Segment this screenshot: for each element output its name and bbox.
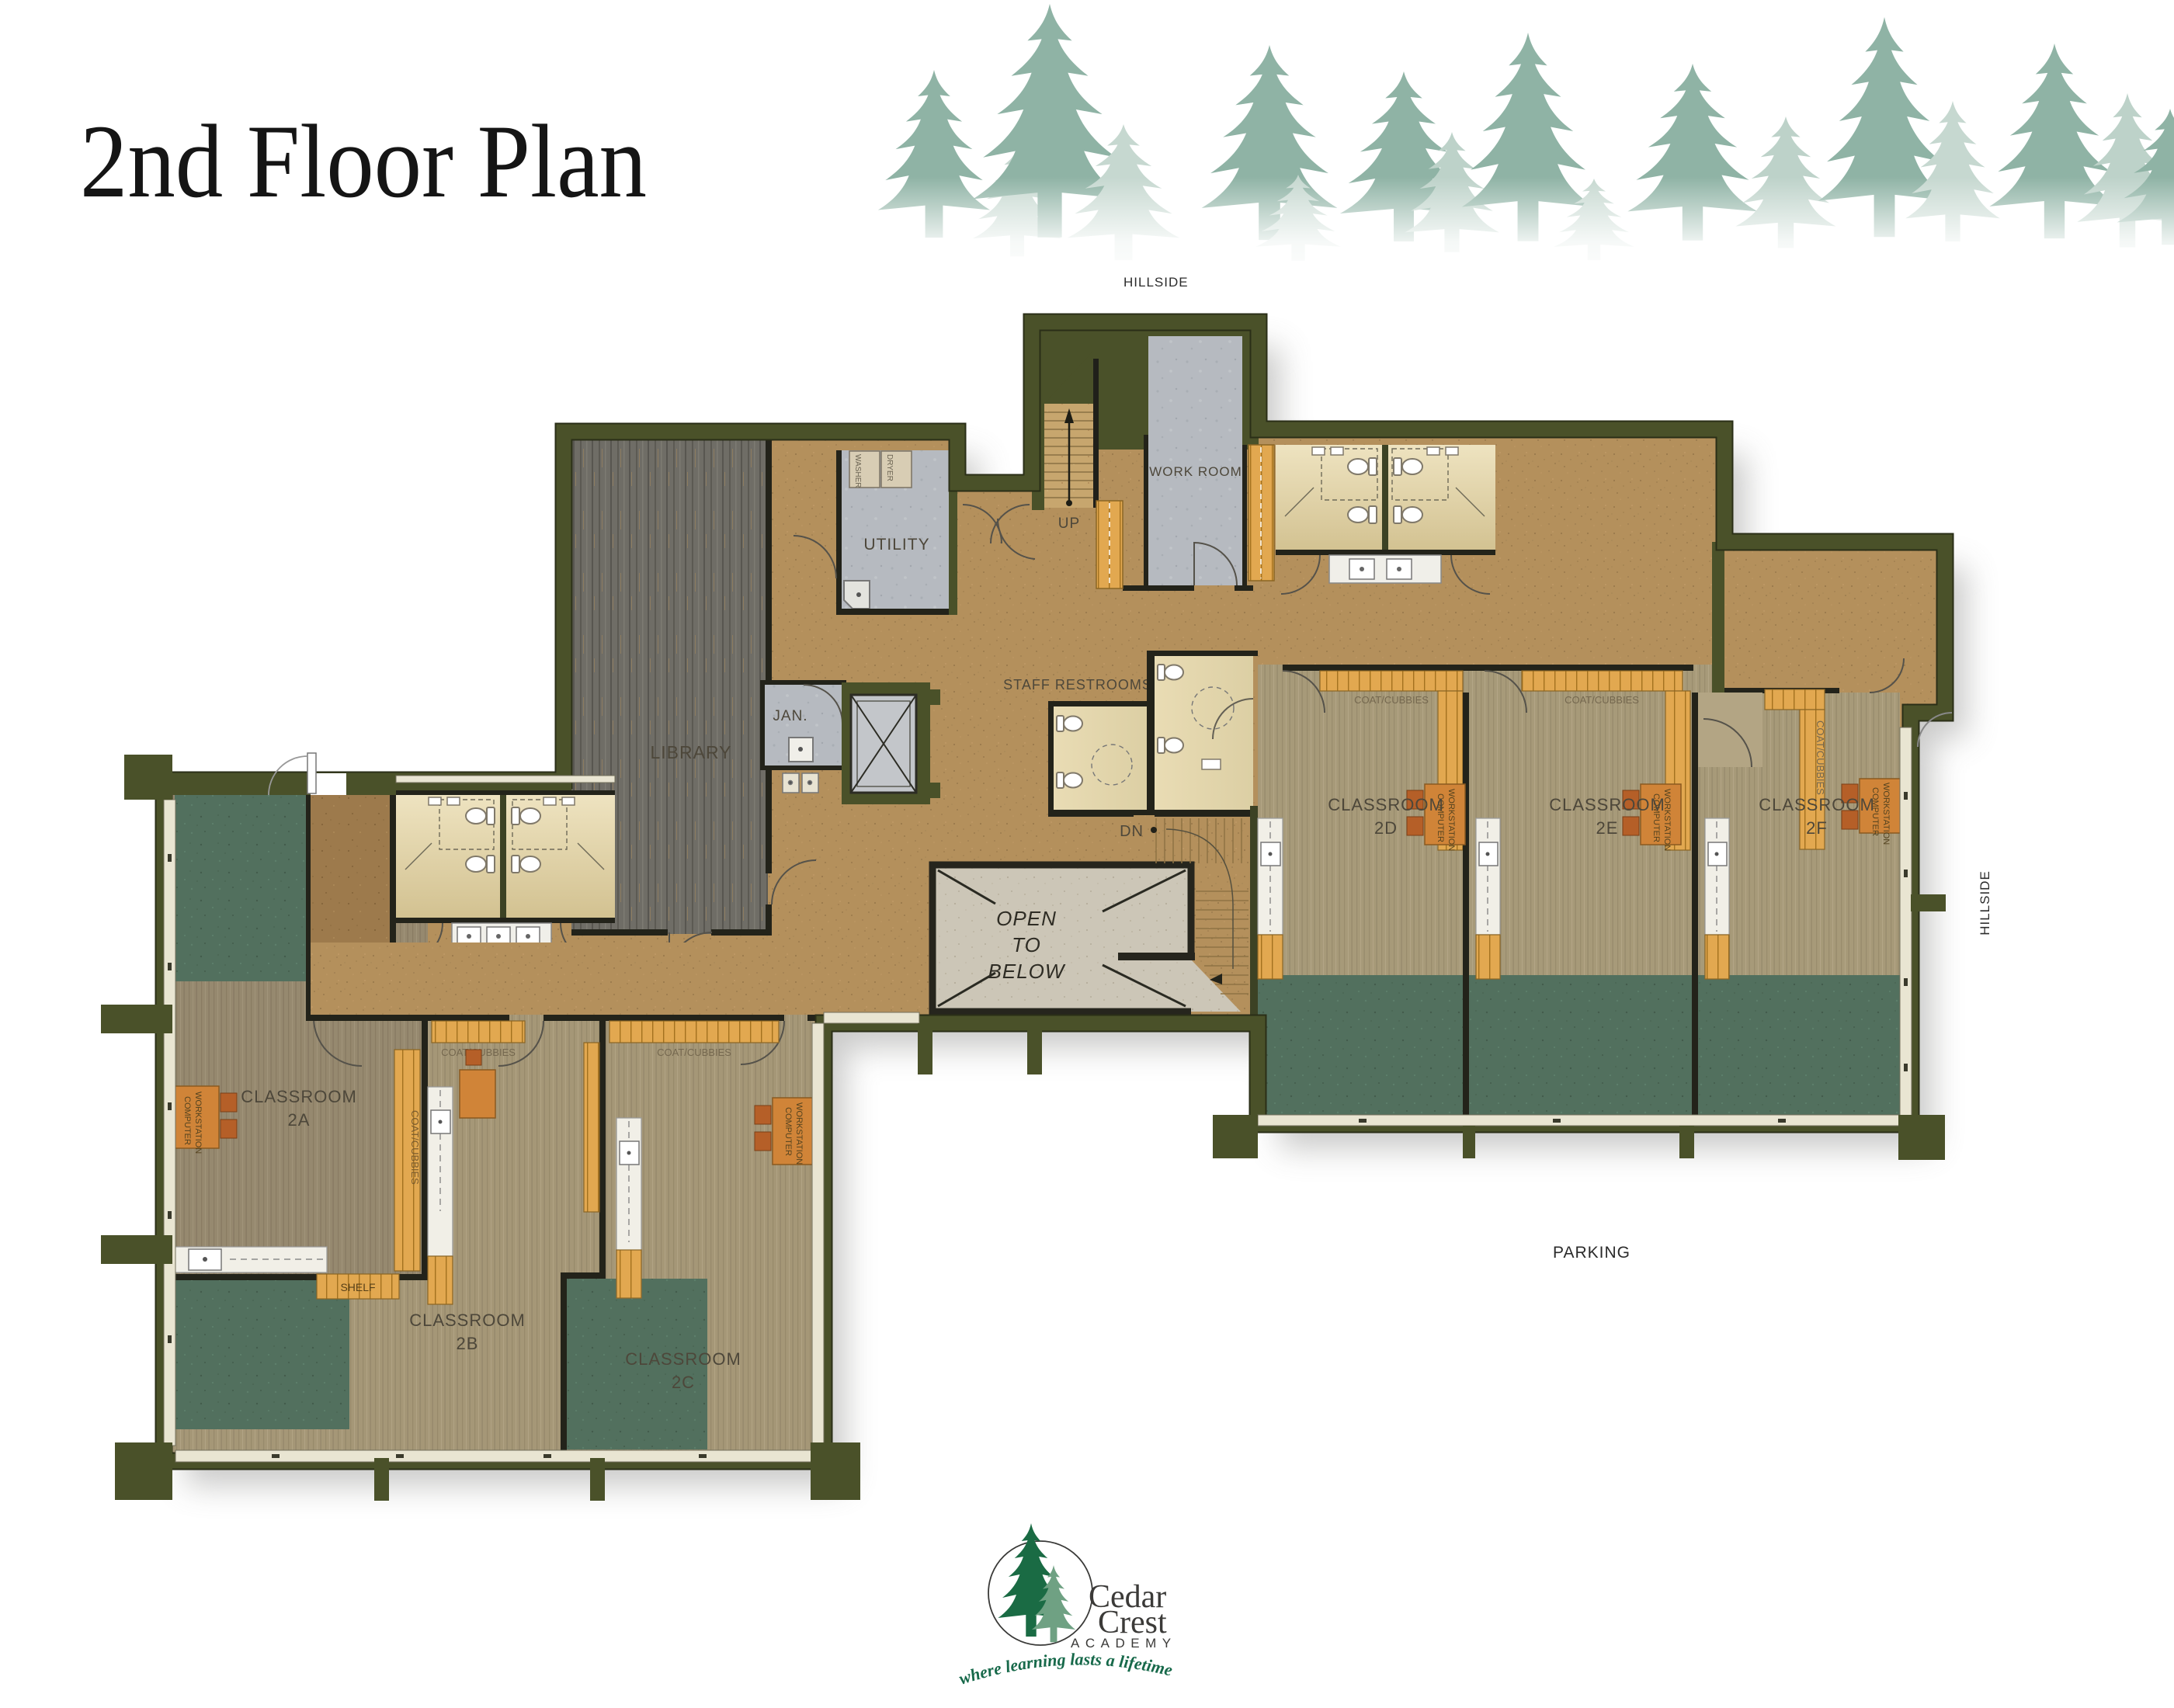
svg-text:CLASSROOM: CLASSROOM [1549, 795, 1665, 814]
svg-text:2E: 2E [1596, 818, 1619, 838]
svg-text:CLASSROOM: CLASSROOM [1328, 795, 1444, 814]
svg-text:HILLSIDE: HILLSIDE [1123, 275, 1189, 290]
svg-text:OPEN: OPEN [996, 907, 1057, 930]
svg-text:STAFF RESTROOMS: STAFF RESTROOMS [1003, 677, 1152, 693]
svg-text:COAT/CUBBIES: COAT/CUBBIES [1354, 694, 1429, 706]
svg-text:UTILITY: UTILITY [863, 536, 929, 554]
svg-text:BELOW: BELOW [988, 960, 1066, 983]
svg-text:CLASSROOM: CLASSROOM [409, 1311, 526, 1330]
svg-text:JAN.: JAN. [773, 708, 807, 724]
svg-text:WORKSTATION: WORKSTATION [794, 1102, 804, 1165]
svg-text:COAT/CUBBIES: COAT/CUBBIES [657, 1047, 731, 1058]
svg-text:HILLSIDE: HILLSIDE [1978, 870, 1992, 936]
svg-text:SHELF: SHELF [340, 1281, 375, 1293]
svg-text:2F: 2F [1806, 818, 1828, 838]
svg-text:ACADEMY: ACADEMY [1071, 1636, 1177, 1651]
svg-text:COAT/CUBBIES: COAT/CUBBIES [409, 1110, 421, 1185]
svg-text:WORKSTATION: WORKSTATION [193, 1092, 203, 1154]
svg-text:DN: DN [1120, 823, 1144, 840]
svg-text:CLASSROOM: CLASSROOM [1759, 795, 1875, 814]
svg-text:UP: UP [1058, 516, 1080, 532]
svg-text:WORKSTATION: WORKSTATION [1446, 789, 1456, 851]
svg-text:2B: 2B [457, 1334, 479, 1353]
svg-text:COMPUTER: COMPUTER [182, 1096, 192, 1145]
svg-text:2nd Floor Plan: 2nd Floor Plan [80, 104, 647, 220]
svg-text:PARKING: PARKING [1553, 1244, 1630, 1262]
svg-text:2D: 2D [1374, 818, 1398, 838]
svg-text:COAT/CUBBIES: COAT/CUBBIES [1815, 720, 1826, 795]
svg-text:DRYER: DRYER [885, 454, 894, 481]
svg-text:CLASSROOM: CLASSROOM [241, 1087, 357, 1106]
svg-text:COAT/CUBBIES: COAT/CUBBIES [1565, 694, 1639, 706]
svg-text:WASHER: WASHER [853, 454, 862, 488]
svg-text:COMPUTER: COMPUTER [783, 1107, 793, 1156]
svg-text:CLASSROOM: CLASSROOM [625, 1349, 741, 1369]
svg-text:2C: 2C [672, 1373, 695, 1392]
svg-text:LIBRARY: LIBRARY [650, 742, 731, 762]
svg-text:WORKSTATION: WORKSTATION [1881, 783, 1891, 845]
svg-text:WORK ROOM: WORK ROOM [1149, 464, 1242, 479]
svg-text:2A: 2A [288, 1110, 311, 1130]
svg-text:TO: TO [1012, 933, 1041, 956]
